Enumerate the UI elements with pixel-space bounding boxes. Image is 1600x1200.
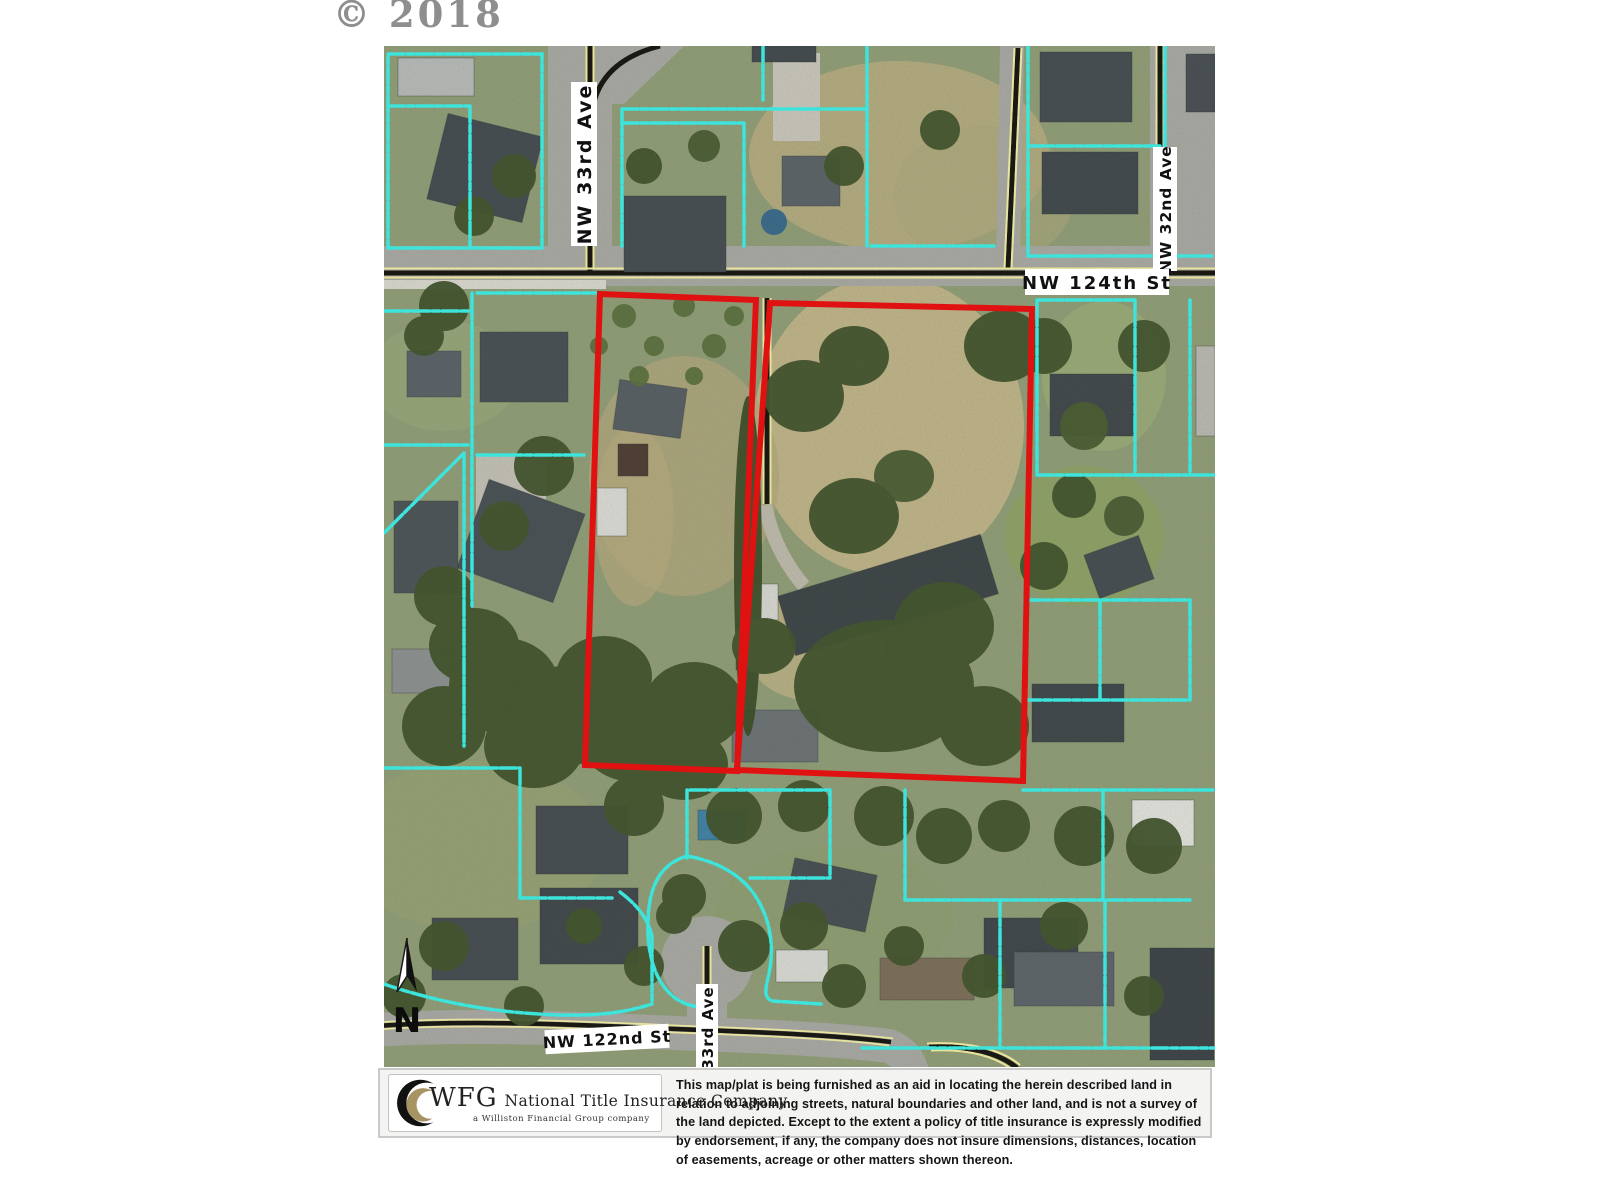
street-label-text: NW 124th St — [1022, 273, 1172, 294]
street-label-nw-124th-st: NW 124th St — [1022, 269, 1172, 295]
photo-noise-overlay — [384, 46, 1215, 1067]
copyright-watermark: © 2018 — [333, 0, 504, 36]
wfg-logo: WFG National Title Insurance Company a W… — [388, 1074, 662, 1132]
street-label-33rd-ave: 33rd Ave — [696, 984, 718, 1067]
aerial-map: NW 33rd Ave NW 32nd Ave NW 124th St NW 1… — [384, 46, 1215, 1067]
logo-tagline: a Williston Financial Group company — [473, 1114, 788, 1124]
footer: WFG National Title Insurance Company a W… — [378, 1068, 1212, 1138]
street-label-nw-32nd-ave: NW 32nd Ave — [1153, 145, 1177, 273]
street-label-text: NW 33rd Ave — [574, 84, 596, 245]
company-name: National Title Insurance Company — [505, 1092, 788, 1110]
wfg-acronym: WFG — [429, 1083, 498, 1113]
street-label-text: 33rd Ave — [699, 986, 717, 1067]
north-label: N — [393, 1001, 421, 1041]
street-label-nw-33rd-ave: NW 33rd Ave — [571, 82, 597, 246]
plat-map-page: © 2018 — [0, 0, 1600, 1200]
street-label-text: NW 32nd Ave — [1157, 145, 1175, 273]
aerial-map-svg: NW 33rd Ave NW 32nd Ave NW 124th St NW 1… — [384, 46, 1215, 1067]
